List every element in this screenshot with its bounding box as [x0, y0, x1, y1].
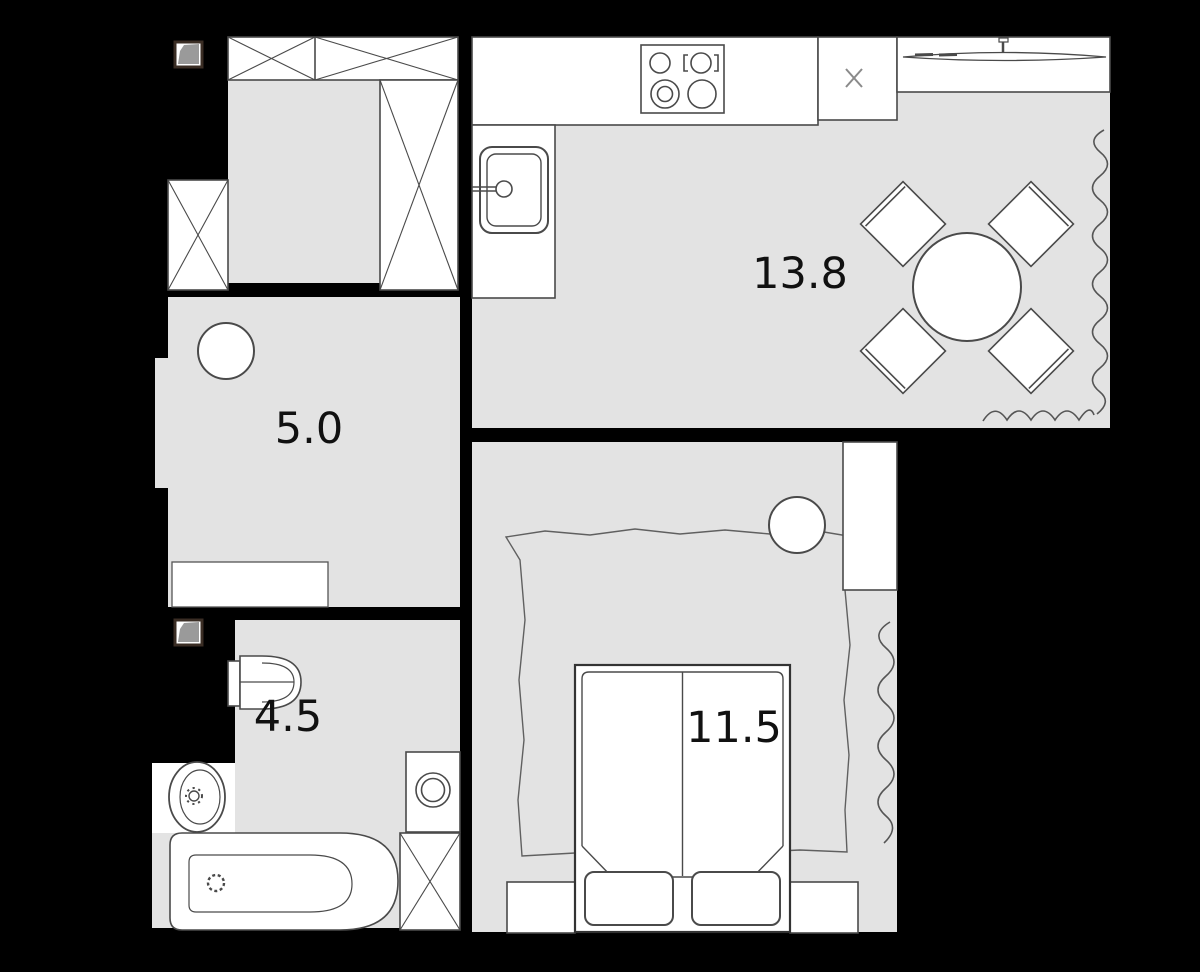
bathtub-icon: [170, 833, 398, 930]
bedroom-area-label: 11.5: [686, 703, 782, 753]
vent-icon: [175, 620, 202, 645]
washing-machine-icon: [406, 752, 460, 832]
kitchen-area-label: 13.8: [752, 249, 848, 299]
fridge-x-box: [818, 37, 897, 120]
hallway-area-label: 5.0: [275, 404, 343, 454]
window-icon: [897, 37, 1110, 92]
floor-plan-drawing: 13.8 5.0: [0, 0, 1200, 972]
vent-icon: [175, 42, 202, 67]
nightstand-right: [790, 882, 858, 933]
hall-top-floor: [228, 60, 380, 283]
pillow-icon: [692, 872, 780, 925]
wardrobe-top: [228, 37, 458, 80]
bathroom-area-label: 4.5: [254, 692, 322, 742]
pillow-icon: [585, 872, 673, 925]
kitchen-sink-icon: [472, 147, 548, 233]
stool-icon: [198, 323, 254, 379]
bath-x-cabinet: [400, 833, 460, 930]
hall-cabinet: [172, 562, 328, 607]
bedroom-wardrobe: [843, 442, 897, 590]
entry-door-recess: [155, 358, 169, 488]
dining-table-icon: [913, 233, 1021, 341]
stove-icon: [641, 45, 724, 113]
pedestal-sink-icon: [169, 762, 225, 832]
nightstand-left: [507, 882, 575, 933]
side-table-icon: [769, 497, 825, 553]
floor-plan-canvas: 13.8 5.0: [0, 0, 1200, 972]
